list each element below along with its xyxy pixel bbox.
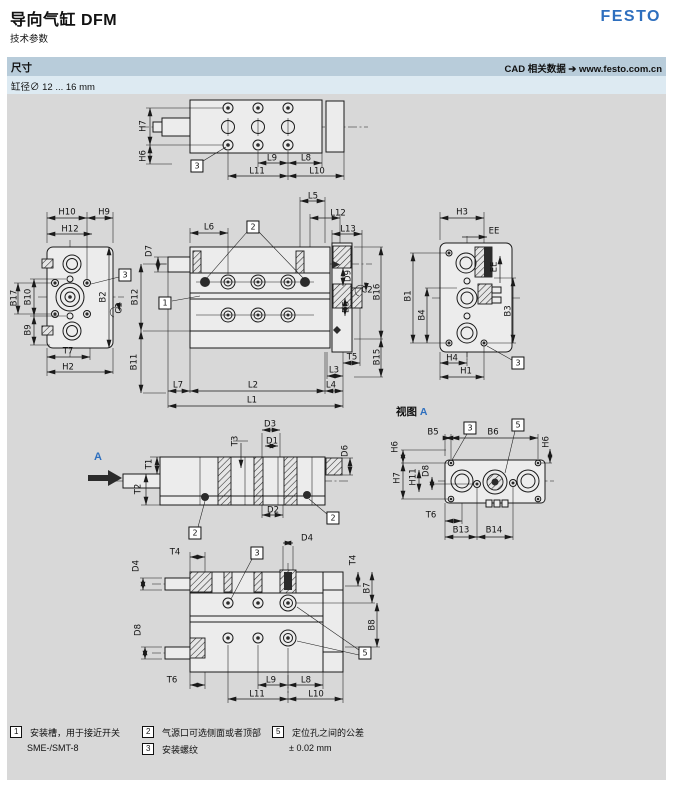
legend-number-box: 3 (142, 743, 154, 755)
dim-label: L2 (248, 382, 258, 391)
dim-label: L11 (249, 691, 265, 700)
dim-label: D8 (135, 624, 144, 636)
dim-label: L8 (301, 677, 311, 686)
dim-label: B10 (25, 289, 34, 306)
legend-text: 定位孔之间的公差 (292, 728, 364, 738)
callout-box: 2 (188, 527, 201, 540)
legend-text: 安装螺纹 (162, 745, 198, 755)
dim-label: D5 (343, 301, 352, 313)
dim-label: C1 (116, 302, 125, 313)
legend-number-box: 1 (10, 726, 22, 738)
dim-label: EE (489, 228, 500, 237)
dim-label: B15 (374, 349, 383, 366)
dim-label: L6 (204, 224, 214, 233)
dim-label: D7 (146, 245, 155, 257)
dim-label: T1 (146, 459, 155, 470)
callout-box: 2 (326, 512, 339, 525)
dim-label: T4 (170, 549, 181, 558)
callout-box: 2 (246, 221, 259, 234)
dim-label: L10 (308, 691, 324, 700)
dim-label: L3 (329, 367, 339, 376)
dim-label: L1 (247, 397, 257, 406)
legend-text: 气源口可选侧面或者顶部 (162, 728, 261, 738)
dim-label: D6 (342, 445, 351, 457)
callout-box: 1 (158, 297, 171, 310)
dim-label: D4 (133, 560, 142, 572)
dim-label: L5 (308, 193, 318, 202)
dim-label: L13 (340, 226, 356, 235)
callout-box: 3 (190, 160, 203, 173)
dim-label: T3 (232, 436, 241, 447)
dim-label: EE (491, 262, 500, 273)
dim-label: B4 (419, 309, 428, 320)
legend-number-box: 5 (272, 726, 284, 738)
dim-label: H6 (543, 436, 552, 448)
dim-label: H2 (62, 364, 74, 373)
dim-label: T6 (167, 677, 178, 686)
dim-label: H7 (140, 120, 149, 132)
dim-label: L10 (309, 168, 325, 177)
drawing-canvas-overlay: 视图 A A H7H63L9L8L11L10H10H9H12B17B10B9B2… (0, 0, 673, 788)
dim-label: B7 (364, 582, 373, 593)
callout-box: 3 (118, 269, 131, 282)
dim-label: H10 (58, 209, 75, 218)
dim-label: D4 (301, 535, 313, 544)
dim-label: L9 (267, 155, 277, 164)
dim-label: H6 (392, 441, 401, 453)
dim-label: L4 (326, 382, 336, 391)
dim-label: B13 (453, 527, 470, 536)
dim-label: B14 (486, 527, 503, 536)
dim-label: B1 (405, 290, 414, 301)
callout-box: 5 (511, 419, 524, 432)
dim-label: B11 (131, 354, 140, 371)
dim-label: B8 (369, 619, 378, 630)
dim-label: D9 (345, 270, 354, 282)
dim-label: B17 (11, 290, 20, 307)
legend-text: 安装槽，用于接近开关 (30, 728, 120, 738)
dim-label: B5 (427, 429, 438, 438)
dim-label: T6 (426, 512, 437, 521)
dim-label: L7 (173, 382, 183, 391)
dim-label: B16 (374, 284, 383, 301)
dim-label: H7 (394, 472, 403, 484)
callout-box: 3 (250, 547, 263, 560)
view-a-title: 视图 A (396, 404, 428, 419)
legend-text: SME-/SMT-8 (27, 743, 79, 753)
dim-label: D2 (267, 507, 279, 516)
dim-label: H12 (61, 226, 78, 235)
view-a-prefix: 视图 (396, 406, 417, 418)
dim-label: T5 (347, 354, 358, 363)
dim-label: T7 (63, 348, 74, 357)
dim-label: L9 (266, 677, 276, 686)
dim-label: H4 (446, 355, 458, 364)
datasheet-page: 导向气缸 DFM 技术参数 FESTO 尺寸 CAD 相关数据 ➔ www.fe… (0, 0, 673, 788)
dim-label: C2 (361, 287, 372, 296)
dim-label: H3 (456, 209, 468, 218)
legend-number-box: 2 (142, 726, 154, 738)
dim-label: D3 (264, 421, 276, 430)
dim-label: D1 (266, 438, 278, 447)
callout-box: 3 (511, 357, 524, 370)
callout-box: 5 (358, 647, 371, 660)
callout-box: 3 (463, 422, 476, 435)
dim-label: H1 (460, 368, 472, 377)
dim-label: H11 (410, 468, 419, 485)
dim-label: L11 (249, 168, 265, 177)
dim-label: B12 (132, 289, 141, 306)
dim-label: H9 (98, 209, 110, 218)
legend-item-5: 5 定位孔之间的公差 ± 0.02 mm (272, 726, 364, 757)
dim-label: T2 (135, 484, 144, 495)
legend-text: ± 0.02 mm (289, 743, 331, 753)
dim-label: L8 (301, 155, 311, 164)
dim-label: B3 (505, 305, 514, 316)
dim-label: B9 (25, 324, 34, 335)
dim-label: T4 (350, 555, 359, 566)
dim-label: B6 (487, 429, 498, 438)
dim-label: H6 (140, 150, 149, 162)
legend-items-2-3: 2 气源口可选侧面或者顶部 3 安装螺纹 (142, 726, 261, 760)
legend-item-1: 1 安装槽，用于接近开关 SME-/SMT-8 (10, 726, 120, 757)
dim-label: D8 (423, 465, 432, 477)
view-a-letter: A (420, 406, 428, 418)
dim-label: B2 (100, 291, 109, 302)
dim-label: L12 (330, 210, 346, 219)
section-arrow-label: A (94, 451, 102, 463)
